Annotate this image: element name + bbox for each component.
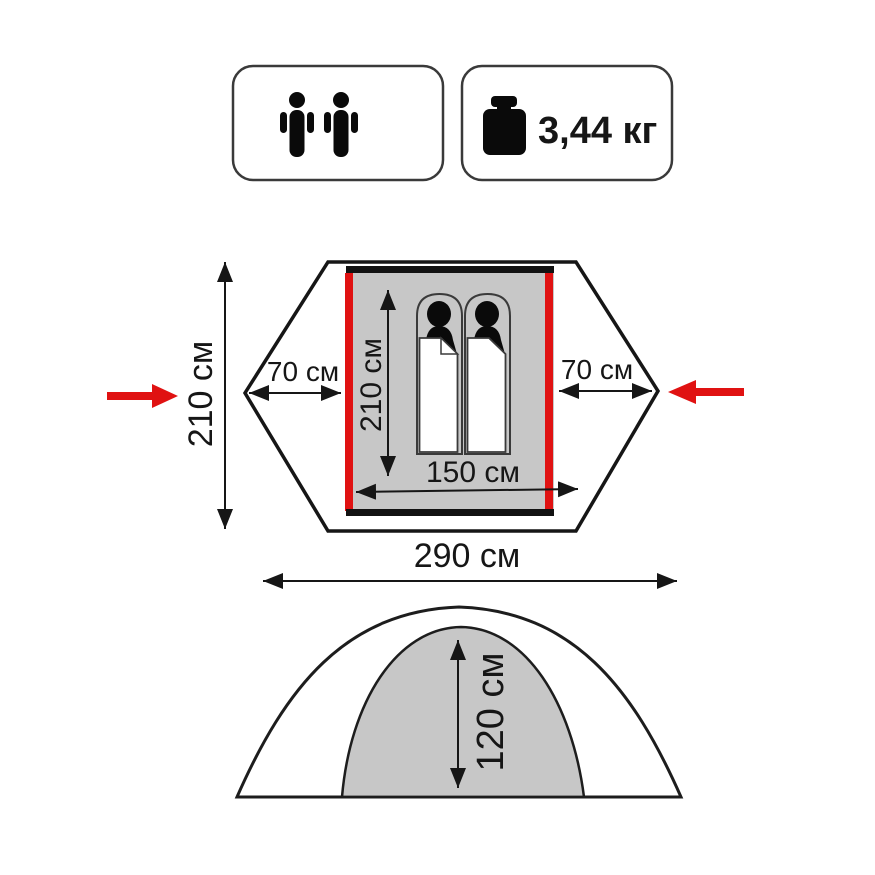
weight-badge: 3,44 кг	[462, 66, 672, 180]
side-view: 120 см	[237, 607, 681, 797]
top-view: 210 см 70 см 70 см 210 см 150 см 290 см	[107, 262, 744, 581]
total-width-label: 290 см	[414, 537, 521, 575]
red-entrance-arrow-right	[668, 380, 744, 404]
dome-height-label: 120 см	[470, 652, 512, 771]
diagram-svg: 3,44 кг 210 см	[0, 0, 875, 875]
inner-width-label: 150 см	[426, 456, 520, 489]
capacity-badge	[233, 66, 443, 180]
red-entrance-arrow-left	[107, 384, 178, 408]
inner-tent-left-red-wall	[345, 273, 353, 511]
total-depth-label: 210 см	[182, 341, 220, 448]
right-vestibule-label: 70 см	[561, 354, 633, 385]
dim-total-depth: 210 см	[182, 262, 225, 529]
weight-value-label: 3,44 кг	[538, 110, 657, 152]
inner-tent-right-red-wall	[545, 273, 553, 511]
inner-tent-top-wall	[346, 266, 554, 273]
tent-spec-diagram: 3,44 кг 210 см	[0, 0, 875, 875]
left-vestibule-label: 70 см	[267, 356, 339, 387]
inner-length-label: 210 см	[355, 338, 388, 432]
dim-total-width: 290 см	[263, 537, 677, 581]
inner-tent-bottom-wall	[346, 509, 554, 516]
